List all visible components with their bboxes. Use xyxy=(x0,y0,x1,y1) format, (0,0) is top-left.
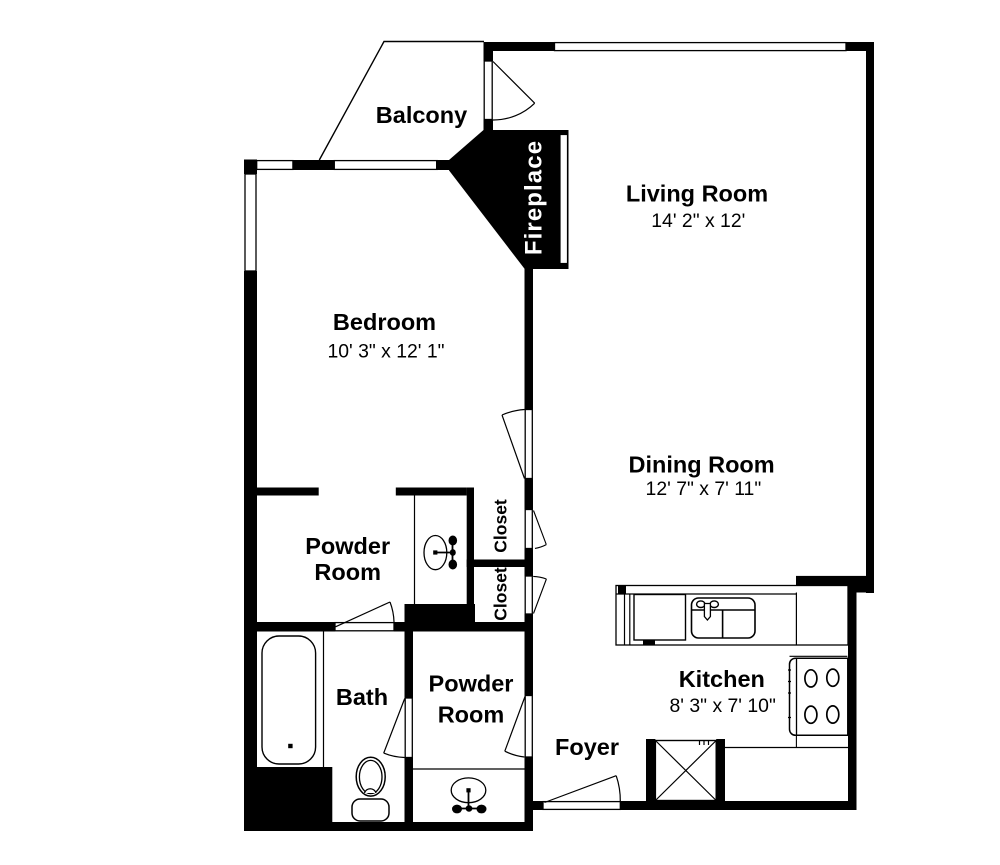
svg-text:Closet: Closet xyxy=(491,567,511,621)
svg-text:Bath: Bath xyxy=(336,684,388,710)
svg-text:Closet: Closet xyxy=(491,499,511,553)
svg-text:Balcony: Balcony xyxy=(376,102,467,128)
svg-text:Kitchen: Kitchen xyxy=(679,666,765,692)
svg-text:Room: Room xyxy=(314,559,381,585)
svg-text:Room: Room xyxy=(438,702,505,728)
svg-text:Powder: Powder xyxy=(429,671,514,697)
svg-text:Living Room: Living Room xyxy=(626,181,768,207)
svg-text:Powder: Powder xyxy=(305,533,390,559)
svg-text:Fireplace: Fireplace xyxy=(521,140,548,255)
svg-text:Foyer: Foyer xyxy=(555,734,619,760)
svg-text:14' 2" x 12': 14' 2" x 12' xyxy=(651,210,745,232)
svg-text:Dining Room: Dining Room xyxy=(628,452,774,478)
svg-text:12' 7" x 7' 11": 12' 7" x 7' 11" xyxy=(646,478,762,500)
svg-text:8' 3" x 7' 10": 8' 3" x 7' 10" xyxy=(670,695,776,717)
svg-text:10' 3" x 12' 1": 10' 3" x 12' 1" xyxy=(327,341,444,363)
svg-text:Bedroom: Bedroom xyxy=(333,309,436,335)
